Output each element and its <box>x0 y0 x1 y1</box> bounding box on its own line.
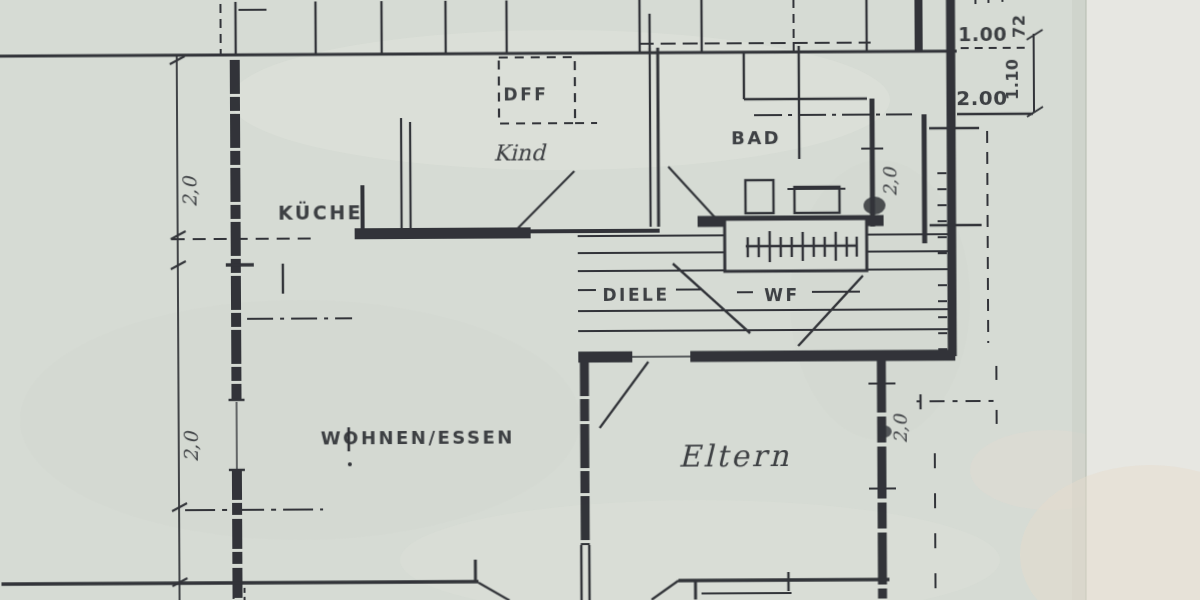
left-wall-lower <box>237 470 238 600</box>
kind-bad-wall-outer <box>658 48 659 227</box>
dff-label: DFF <box>503 84 548 104</box>
kueche-label: KÜCHE <box>278 200 363 223</box>
dim-left-upper: 2,0 <box>178 175 200 207</box>
dim-right-lower: 2,0 <box>890 413 911 443</box>
knee-wall-dashdot-lower <box>185 509 323 510</box>
eltern-east-wall <box>881 361 882 599</box>
wf-label: WF <box>764 285 799 305</box>
dim-left-lower: 2,0 <box>180 430 202 462</box>
kind-bad-wall-inner <box>650 48 651 227</box>
wohnen-essen-label: WOHNEN/ESSEN <box>321 426 515 448</box>
bad-knee-wall-dashdot <box>754 114 912 115</box>
kueche-south-wall <box>355 227 531 239</box>
scan-blob-wall-junction <box>863 197 885 215</box>
center-wall-vertical <box>584 352 585 545</box>
kind-south-wall <box>531 231 660 232</box>
paper-stain <box>20 300 580 540</box>
floor-plan-scan: 1.00 72 2.00 1.10 2,0 2,0 <box>0 0 1200 600</box>
eltern-label: Eltern <box>678 438 791 474</box>
floor-plan-svg: 1.00 72 2.00 1.10 2,0 2,0 <box>0 0 1200 600</box>
dim-top-depth-large: 1.10 <box>1003 58 1022 100</box>
knee-wall-dashdot-upper <box>247 318 352 319</box>
bad-inner-partition <box>799 46 800 159</box>
dim-top-width-large: 2.00 <box>956 86 1007 110</box>
right-wall-line <box>950 0 952 356</box>
shaft-wall <box>924 114 925 243</box>
bad-label: BAD <box>731 127 781 148</box>
bottom-wall-right <box>678 579 889 580</box>
dim-top-depth-small: 72 <box>1010 14 1029 37</box>
diele-label: DIELE <box>602 285 669 305</box>
wohnen-dot-mark <box>348 462 352 466</box>
dim-top-width-small: 1.00 <box>958 23 1007 45</box>
dim-right-upper: 2,0 <box>879 166 900 196</box>
kind-label: Kind <box>493 140 547 165</box>
